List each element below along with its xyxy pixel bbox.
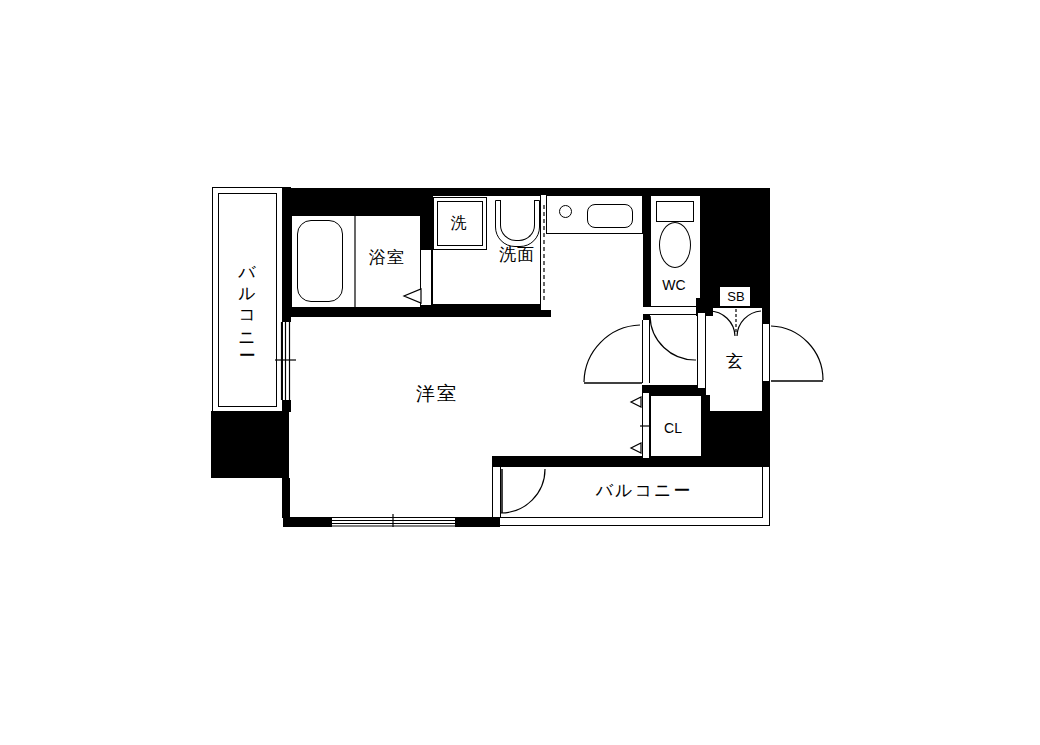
room-label-balcony-bottom: バルコニー bbox=[596, 482, 693, 499]
room-label-entrance: 玄 bbox=[726, 353, 744, 370]
wall-segment bbox=[283, 187, 291, 322]
wall-segment bbox=[643, 188, 650, 320]
main-door-frame bbox=[642, 320, 650, 383]
kitchen-sink bbox=[587, 204, 633, 228]
wall-segment bbox=[492, 456, 770, 467]
toilet-tank bbox=[656, 201, 694, 222]
room-label-balcony-left: バルコニー bbox=[239, 252, 256, 349]
wall-segment bbox=[283, 517, 332, 527]
wall-segment bbox=[420, 195, 432, 250]
front-door-arc bbox=[771, 326, 823, 380]
room-label-washroom: 洗面 bbox=[499, 246, 535, 263]
stove-burner bbox=[559, 205, 572, 218]
closet-slide-arrow bbox=[631, 443, 641, 453]
room-label-shoe-box: SB bbox=[727, 290, 744, 303]
toilet-bowl bbox=[659, 222, 691, 268]
room-label-closet: CL bbox=[664, 421, 682, 435]
front-door-opening bbox=[762, 324, 770, 381]
washbasin-bowl bbox=[500, 200, 535, 241]
closet-slide-arrow bbox=[631, 397, 641, 407]
wall-segment bbox=[762, 307, 770, 324]
door-swing-and-window-linework bbox=[0, 0, 1040, 745]
room-label-bathroom: 浴室 bbox=[369, 249, 405, 266]
wc-door-leaf bbox=[643, 306, 696, 315]
wall-segment bbox=[762, 381, 770, 412]
room-label-washer: 洗 bbox=[451, 215, 468, 231]
wall-segment bbox=[211, 411, 289, 478]
wall-segment bbox=[702, 395, 710, 467]
room-label-wc: WC bbox=[662, 278, 685, 292]
wall-segment bbox=[705, 412, 770, 462]
main-door-arc bbox=[584, 325, 640, 382]
wall-segment bbox=[455, 517, 500, 527]
entrance-step-partition bbox=[697, 313, 705, 388]
bathtub bbox=[297, 220, 343, 302]
wall-segment bbox=[282, 478, 290, 518]
floor-plan: バルコニー 浴室 洗 洗面 WC SB 玄 CL 洋室 バルコニー bbox=[0, 0, 1040, 745]
room-label-western-room: 洋室 bbox=[416, 384, 458, 403]
wc-door-arc bbox=[650, 316, 696, 360]
bathroom-door-opening bbox=[420, 250, 432, 305]
closet-sliding-door bbox=[642, 393, 650, 458]
